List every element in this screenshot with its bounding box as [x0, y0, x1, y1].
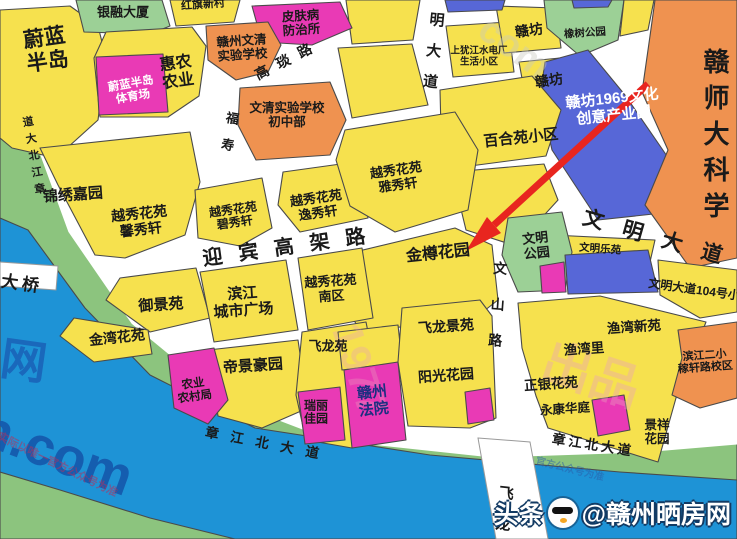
- block-label-ganzhou-fayuan: 赣州法院: [356, 384, 389, 421]
- block-label-binjiang-chengshi-guangchang: 滨江城市广场: [212, 284, 274, 322]
- block-label-nongye-nongcunju: 农业农村局: [175, 376, 213, 406]
- block-label-ruili-jiayuan: 瑞丽佳园: [304, 400, 328, 427]
- block-top-center: [346, 0, 420, 44]
- mascot-face-icon: [548, 498, 578, 528]
- block-label-weilan-bandao: 蔚蓝半岛: [22, 24, 70, 76]
- block-label-yuwanli: 渔湾里: [563, 340, 604, 358]
- block-label-pifubing-fangzhisuo: 皮肤病防治所: [281, 8, 320, 39]
- block-gaoyan-east: [338, 44, 428, 118]
- block-label-shangyoujiang-shenghuo-xiaoqu: 上犹江水电厂生活小区: [450, 46, 507, 67]
- block-label-wenming-gongyuan: 文明公园: [522, 230, 551, 262]
- ganzhou-real-estate-map: 蔚蓝半岛银融大厦红旗新村惠农农业蔚蓝半岛体育场皮肤病防治所赣州文清实验学校文清实…: [0, 0, 737, 539]
- block-park-magenta: [540, 262, 566, 293]
- block-label-yujingyuan: 御景苑: [138, 296, 184, 316]
- block-label-jingxiang-huayuan: 景祥花园: [644, 418, 669, 446]
- block-label-binjiang-erxiao-jiaxuanlu: 滨江二小稼轩路校区: [677, 348, 734, 376]
- block-topblue-2: [572, 0, 612, 8]
- block-label-ganshida-kexue: 赣师大科学: [702, 48, 728, 228]
- block-label-feilongyuan: 飞龙苑: [308, 340, 347, 355]
- block-topblue-1: [445, 0, 505, 12]
- logo-prefix: 头条: [494, 495, 544, 531]
- block-label-yuexiu-xinxiuxuan: 越秀花苑馨秀轩: [111, 203, 170, 240]
- block-feilong-magenta: [465, 388, 494, 424]
- block-yuwan-magenta: [592, 395, 630, 436]
- block-label-wenqing-shiyan-chuzhongbu: 文清实验学校初中部: [249, 101, 324, 129]
- block-label-yinrong-dasha: 银融大厦: [97, 6, 149, 21]
- logo-handle: @赣州晒房网: [582, 495, 731, 531]
- block-label-ganzhou-wenqing-shiyan-xuexiao: 赣州文清实验学校: [216, 32, 268, 63]
- site-logo: 头条 @赣州晒房网: [494, 495, 731, 531]
- block-label-yuexiu-nanqu: 越秀花苑南区: [304, 273, 358, 306]
- block-label-huinong-nongye: 惠农农业: [159, 53, 196, 93]
